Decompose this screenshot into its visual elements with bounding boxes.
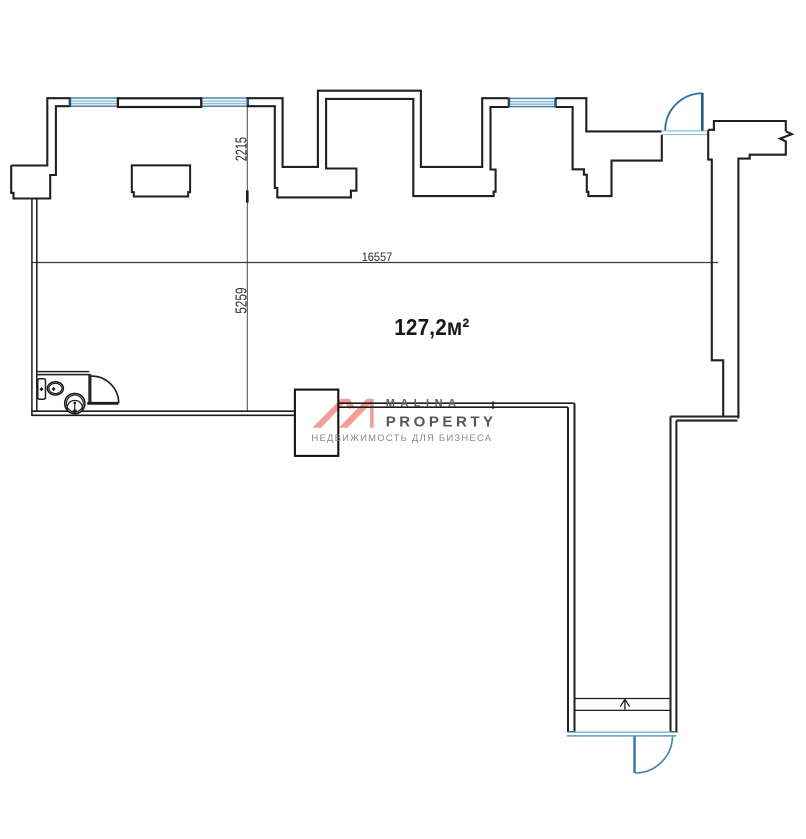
svg-text:MALINA: MALINA (386, 398, 462, 410)
svg-text:НЕДВИЖИМОСТЬ ДЛЯ БИЗНЕСА: НЕДВИЖИМОСТЬ ДЛЯ БИЗНЕСА (311, 433, 492, 444)
svg-text:5259: 5259 (232, 287, 250, 314)
svg-text:PROPERTY: PROPERTY (386, 414, 497, 431)
svg-text:127,2м²: 127,2м² (394, 314, 469, 340)
svg-text:2215: 2215 (233, 137, 250, 161)
svg-text:16557: 16557 (362, 251, 393, 265)
